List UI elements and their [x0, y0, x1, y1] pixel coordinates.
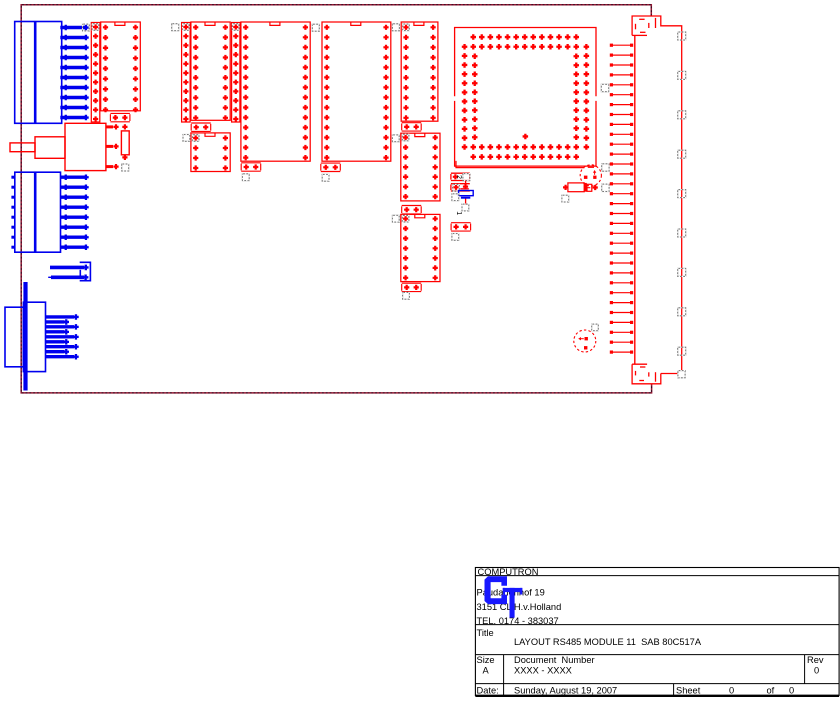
- svg-text:0: 0: [729, 685, 734, 695]
- svg-text:of: of: [767, 685, 775, 695]
- svg-text:Size: Size: [477, 655, 495, 665]
- svg-text:Sheet: Sheet: [676, 685, 701, 695]
- svg-text:0: 0: [814, 666, 819, 676]
- svg-text:2: 2: [455, 175, 462, 179]
- svg-text:Rev: Rev: [807, 655, 824, 665]
- svg-text:Title: Title: [477, 628, 494, 638]
- svg-text:Document Number: Document Number: [514, 655, 595, 665]
- svg-text:LAYOUT RS485 MODULE 11 SAB 80: LAYOUT RS485 MODULE 11 SAB 80C517A: [514, 637, 702, 647]
- svg-text:Date:: Date:: [477, 685, 499, 695]
- svg-text:XXXX - XXXX: XXXX - XXXX: [514, 666, 572, 676]
- svg-text:0: 0: [789, 685, 794, 695]
- svg-text:COMPUTRON: COMPUTRON: [478, 567, 539, 577]
- svg-text:TEL. 0174 - 383037: TEL. 0174 - 383037: [477, 616, 559, 626]
- svg-text:A: A: [483, 666, 490, 676]
- svg-text:1: 1: [455, 211, 462, 215]
- svg-text:Sunday, August 19, 2007: Sunday, August 19, 2007: [514, 685, 617, 695]
